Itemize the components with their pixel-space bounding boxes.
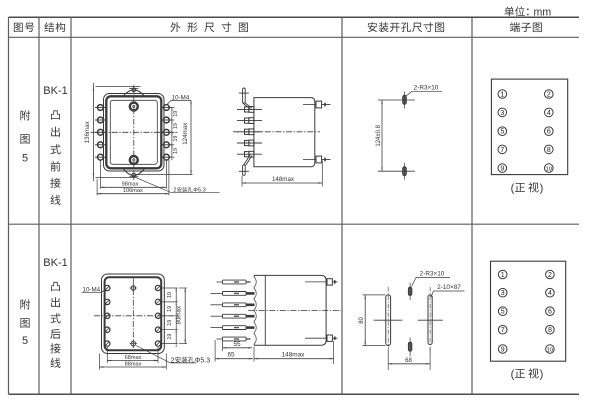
svg-text:98max: 98max xyxy=(122,181,139,187)
svg-text:2: 2 xyxy=(547,92,551,99)
svg-text:6: 6 xyxy=(547,129,551,136)
svg-text:4: 4 xyxy=(547,110,551,117)
svg-text:4: 4 xyxy=(548,290,552,297)
svg-text:3: 3 xyxy=(500,110,504,117)
svg-text:2-R3×10: 2-R3×10 xyxy=(420,271,445,278)
svg-text:10: 10 xyxy=(546,167,552,173)
svg-text:19: 19 xyxy=(173,136,179,142)
svg-text:2-R3×10: 2-R3×10 xyxy=(414,85,439,92)
svg-text:5: 5 xyxy=(22,153,28,165)
svg-text:9: 9 xyxy=(500,166,504,173)
svg-text:8: 8 xyxy=(547,147,551,154)
svg-text:148max: 148max xyxy=(272,176,295,183)
svg-text:5: 5 xyxy=(22,335,28,347)
svg-text:19: 19 xyxy=(167,320,173,326)
svg-text:19: 19 xyxy=(167,306,173,312)
svg-text:9: 9 xyxy=(501,347,505,354)
svg-text:2: 2 xyxy=(173,188,176,194)
svg-text:Φ5.3: Φ5.3 xyxy=(195,357,210,364)
svg-text:2: 2 xyxy=(171,357,175,364)
svg-text:19: 19 xyxy=(167,334,173,340)
svg-text:5: 5 xyxy=(500,129,504,136)
svg-text:(: ( xyxy=(511,183,515,195)
svg-text:55: 55 xyxy=(233,341,241,348)
svg-text:1: 1 xyxy=(501,272,505,279)
svg-text:136max: 136max xyxy=(84,120,91,143)
svg-text:5: 5 xyxy=(501,309,505,316)
svg-text:(: ( xyxy=(511,369,515,381)
svg-text:65: 65 xyxy=(227,352,235,359)
svg-text:19: 19 xyxy=(167,292,173,298)
svg-text:3: 3 xyxy=(501,290,505,297)
svg-text:BK-1: BK-1 xyxy=(43,85,67,97)
svg-text:2-10×87: 2-10×87 xyxy=(437,284,461,291)
svg-text:124±0.8: 124±0.8 xyxy=(376,124,382,146)
svg-text:2: 2 xyxy=(548,272,552,279)
svg-text:1: 1 xyxy=(500,92,504,99)
svg-text:148max: 148max xyxy=(282,352,306,359)
svg-text:124max: 124max xyxy=(182,122,189,145)
svg-text:): ) xyxy=(540,369,544,381)
svg-text:): ) xyxy=(540,183,544,195)
svg-text:106max: 106max xyxy=(123,188,143,194)
svg-text:BK-1: BK-1 xyxy=(43,257,67,269)
svg-text:19: 19 xyxy=(173,111,179,117)
svg-text:80: 80 xyxy=(359,317,365,324)
svg-text:68max: 68max xyxy=(125,355,142,361)
svg-text:7: 7 xyxy=(501,327,505,334)
svg-text:7: 7 xyxy=(500,147,504,154)
svg-text:8: 8 xyxy=(548,327,552,334)
svg-text:68: 68 xyxy=(405,358,412,364)
svg-text:6: 6 xyxy=(548,309,552,316)
svg-text:Φ5.3: Φ5.3 xyxy=(193,188,206,194)
svg-text:19: 19 xyxy=(173,123,179,129)
svg-text:10: 10 xyxy=(547,348,553,354)
svg-text:80max: 80max xyxy=(176,305,183,324)
svg-text:19: 19 xyxy=(173,148,179,154)
svg-text:88max: 88max xyxy=(125,361,142,367)
